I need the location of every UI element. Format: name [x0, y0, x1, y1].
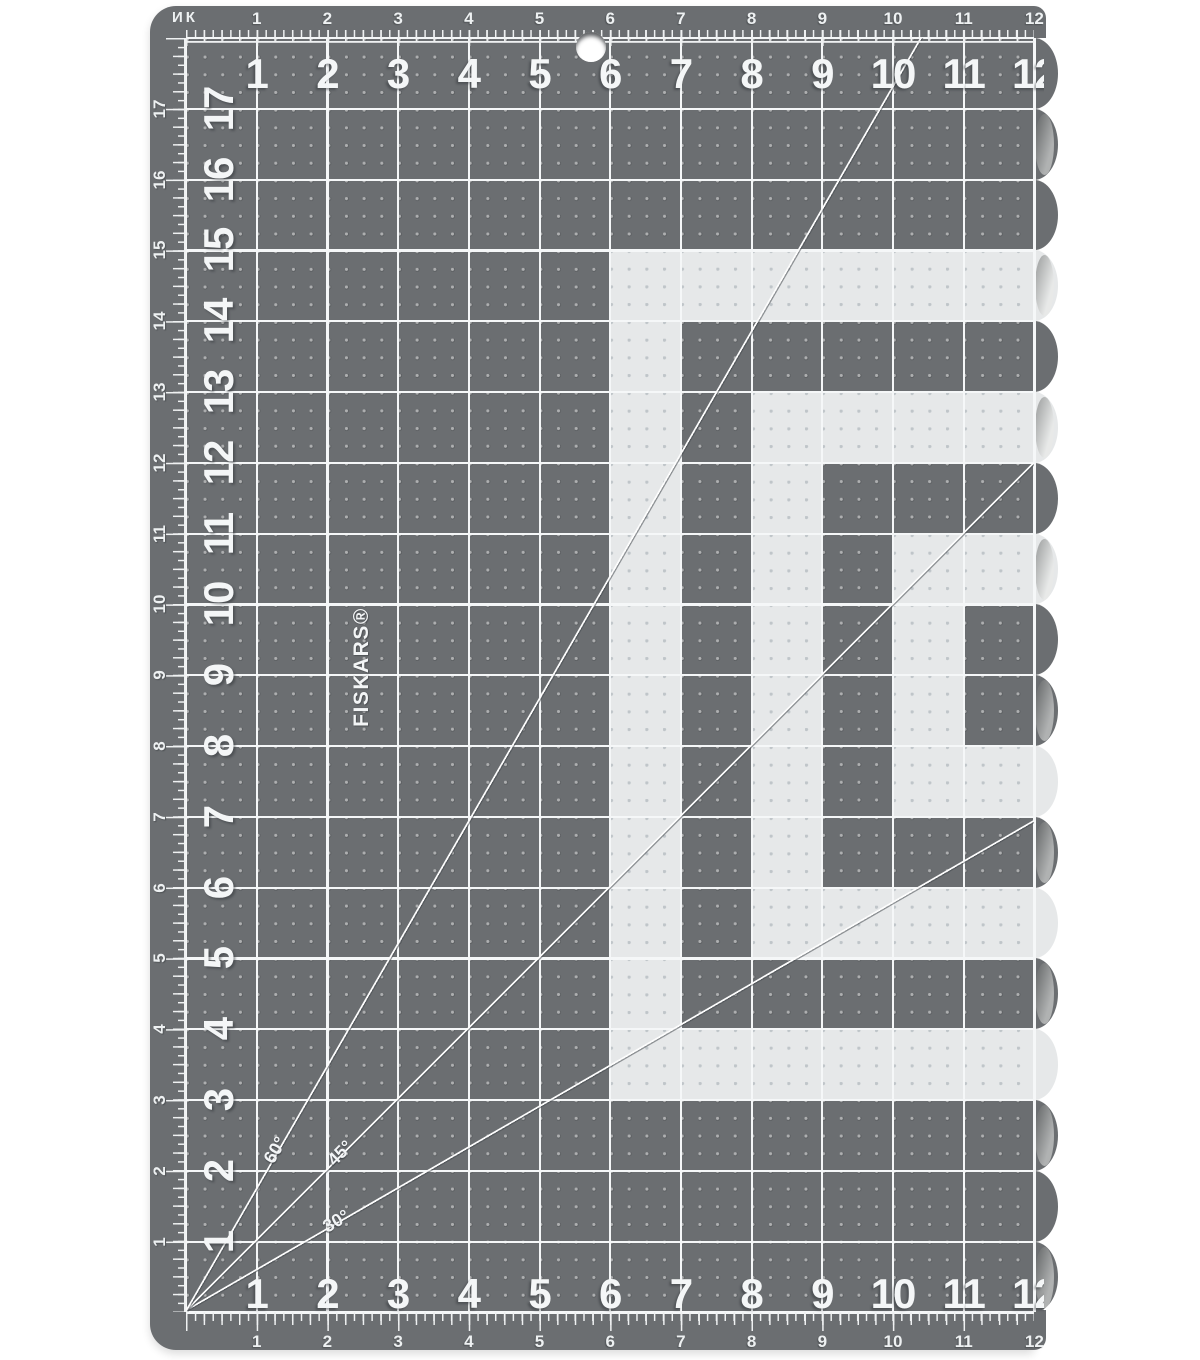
edge-ruler-number: 6	[590, 9, 630, 29]
edge-scallop	[1034, 888, 1058, 959]
edge-ruler-number: 16	[150, 160, 170, 200]
angle-label-60: 60°	[255, 1126, 294, 1174]
row-number: 4	[197, 994, 241, 1064]
edge-ruler-number: 7	[661, 1332, 701, 1352]
row-number: 6	[197, 853, 241, 923]
row-number: 5	[197, 923, 241, 993]
edge-ruler-number: 8	[732, 1332, 772, 1352]
edge-ruler-number: 9	[802, 1332, 842, 1352]
edge-curl-shading	[1035, 539, 1054, 600]
edge-ruler-number: 9	[150, 655, 170, 695]
column-number: 3	[363, 52, 433, 96]
corner-marking-text: ИК	[172, 9, 198, 26]
row-number: 1	[197, 1207, 241, 1277]
column-number: 8	[717, 52, 787, 96]
angle-label-45: 45°	[317, 1130, 362, 1175]
diagonal-line-60	[186, 38, 928, 1312]
edge-scallop	[1034, 817, 1058, 888]
row-number: 8	[197, 711, 241, 781]
edge-ruler-number: 1	[237, 1332, 277, 1352]
diagonal-line-45	[186, 463, 1034, 1312]
edge-scallop	[1034, 1171, 1058, 1242]
edge-ruler-number: 7	[661, 9, 701, 29]
fiskars-logo: FISKARS®	[350, 607, 374, 727]
edge-ruler-number: 8	[150, 726, 170, 766]
edge-ruler-number: 5	[150, 938, 170, 978]
row-number: 14	[197, 286, 241, 356]
edge-scallop	[1034, 534, 1058, 605]
column-number: 7	[646, 1272, 716, 1316]
edge-scallop	[1034, 746, 1058, 817]
column-number: 6	[575, 1272, 645, 1316]
product-photo: 60°45°30° 123456789101112 12345678910111…	[0, 0, 1200, 1360]
edge-ruler-number: 12	[150, 443, 170, 483]
edge-ruler-number: 10	[873, 1332, 913, 1352]
edge-ruler-number: 1	[150, 1222, 170, 1262]
edge-scallop	[1034, 1100, 1058, 1171]
edge-ruler-number: 5	[520, 9, 560, 29]
row-number: 11	[197, 499, 241, 569]
top-edge-ruler-numbers: 123456789101112	[150, 6, 1044, 32]
edge-curl-shading	[1035, 397, 1054, 458]
column-number: 12	[999, 52, 1044, 96]
edge-ruler-number: 2	[150, 1151, 170, 1191]
column-number: 5	[505, 1272, 575, 1316]
row-number: 13	[197, 357, 241, 427]
edge-curl-shading	[1035, 963, 1054, 1024]
column-number: 11	[929, 52, 999, 96]
edge-ruler-number: 9	[802, 9, 842, 29]
edge-ruler-number: 17	[150, 89, 170, 129]
cutting-mat: 60°45°30° 123456789101112 12345678910111…	[150, 6, 1090, 1350]
column-number: 4	[434, 1272, 504, 1316]
row-number: 7	[197, 782, 241, 852]
edge-curl-shading	[1035, 1105, 1054, 1166]
row-number: 10	[197, 569, 241, 639]
column-number: 5	[505, 52, 575, 96]
edge-scallop	[1034, 392, 1058, 463]
row-number: 17	[197, 74, 241, 144]
edge-scallop	[1034, 321, 1058, 392]
edge-ruler-number: 5	[520, 1332, 560, 1352]
column-number: 9	[787, 1272, 857, 1316]
edge-ruler-number: 7	[150, 797, 170, 837]
row-number: 9	[197, 640, 241, 710]
edge-ruler-number: 10	[873, 9, 913, 29]
edge-ruler-number: 13	[150, 372, 170, 412]
edge-ruler-number: 12	[1014, 1332, 1044, 1352]
row-number: 2	[197, 1136, 241, 1206]
column-number: 9	[787, 52, 857, 96]
edge-ruler-number: 2	[307, 1332, 347, 1352]
column-number: 1	[222, 1272, 292, 1316]
edge-ruler-number: 3	[378, 1332, 418, 1352]
angle-label-30: 30°	[312, 1201, 360, 1240]
edge-ruler-number: 11	[150, 514, 170, 554]
edge-curl-shading	[1035, 114, 1054, 175]
column-number: 12	[999, 1272, 1044, 1316]
column-number: 11	[929, 1272, 999, 1316]
edge-scallop	[1034, 250, 1058, 321]
edge-curl-shading	[1035, 255, 1054, 316]
column-number: 7	[646, 52, 716, 96]
column-number: 2	[292, 1272, 362, 1316]
diagonal-line-30	[186, 821, 1034, 1313]
edge-curl-shading	[1035, 822, 1054, 883]
edge-ruler-number: 11	[944, 1332, 984, 1352]
edge-ruler-number: 15	[150, 230, 170, 270]
edge-ruler-number: 4	[150, 1009, 170, 1049]
row-number: 16	[197, 145, 241, 215]
edge-ruler-number: 10	[150, 584, 170, 624]
edge-scallop	[1034, 109, 1058, 180]
column-number: 10	[858, 1272, 928, 1316]
column-number: 4	[434, 52, 504, 96]
column-number: 10	[858, 52, 928, 96]
row-number: 15	[197, 215, 241, 285]
row-number: 3	[197, 1065, 241, 1135]
edge-scallop	[1034, 463, 1058, 534]
edge-scallop	[1034, 604, 1058, 675]
edge-ruler-number: 14	[150, 301, 170, 341]
edge-ruler-number: 2	[307, 9, 347, 29]
edge-scallop	[1034, 958, 1058, 1029]
bottom-edge-ruler-numbers: 123456789101112	[150, 1328, 1044, 1354]
column-number: 8	[717, 1272, 787, 1316]
edge-scallop	[1034, 1029, 1058, 1100]
edge-ruler-number: 8	[732, 9, 772, 29]
edge-ruler-number: 4	[449, 9, 489, 29]
edge-ruler-number: 12	[1014, 9, 1044, 29]
edge-ruler-number: 3	[150, 1080, 170, 1120]
edge-ruler-number: 4	[449, 1332, 489, 1352]
edge-ruler-number: 1	[237, 9, 277, 29]
row-number: 12	[197, 428, 241, 498]
edge-ruler-number: 11	[944, 9, 984, 29]
bottom-inch-numbers: 123456789101112	[150, 1264, 1044, 1322]
edge-ruler-number: 6	[590, 1332, 630, 1352]
edge-curl-shading	[1035, 680, 1054, 741]
column-number: 2	[292, 52, 362, 96]
hanging-hole	[576, 32, 606, 62]
bias-lines-area: 60°45°30°	[186, 38, 1034, 1312]
edge-ruler-number: 3	[378, 9, 418, 29]
edge-scallop	[1034, 675, 1058, 746]
edge-scallop	[1034, 180, 1058, 251]
column-number: 3	[363, 1272, 433, 1316]
edge-ruler-number: 6	[150, 868, 170, 908]
